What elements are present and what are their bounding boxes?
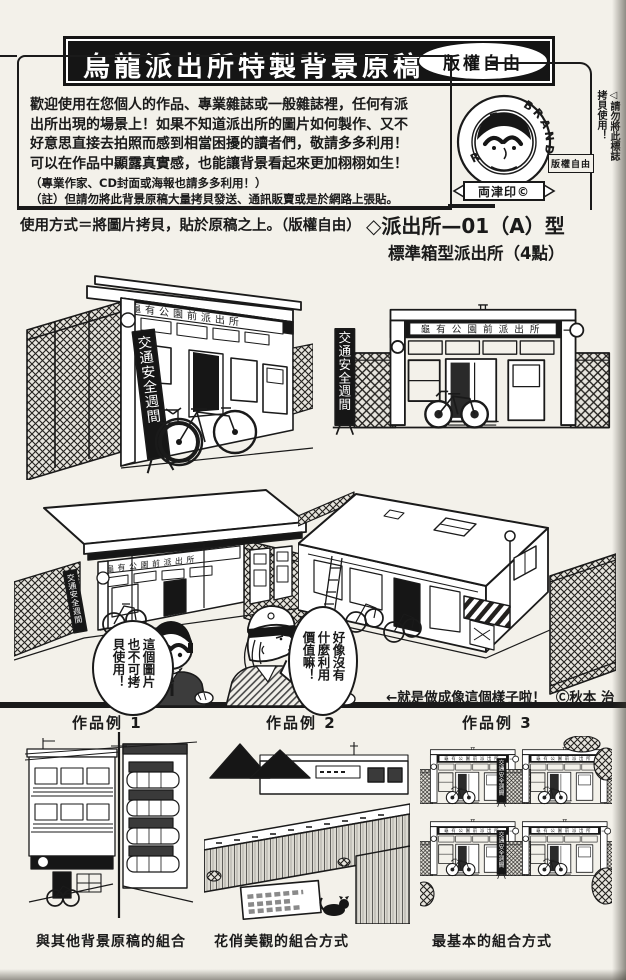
intro-line: 可以在作品中顯露真實感，也能讓背景看起來更加栩栩如生！: [30, 155, 442, 175]
model-title: ◇派出所—01（A）型: [366, 210, 565, 239]
speech-text: 這個圖片也不可拷貝使用！: [111, 638, 156, 698]
intro-note: （註）但請勿將此背景原稿大量拷貝發送、通訊販賣或是於網路上張貼。: [30, 192, 442, 206]
example-caption-1: 與其他背景原稿的組合: [36, 931, 186, 951]
speech-text: 好像沒有什麼利用價值嘛！: [301, 631, 346, 691]
model-subtitle: 標準箱型派出所（4點）: [388, 240, 564, 264]
example-panel-2-art: [204, 734, 410, 924]
intro-paragraph: 歡迎使用在您個人的作品、專業雜誌或一般雜誌裡，任何有派 出所出現的場景上！如果不…: [30, 96, 442, 206]
scan-edge-shadow-bottom: [0, 969, 626, 980]
poster-art: [241, 881, 321, 920]
intro-line: 出所出現的場景上！如果不知道派出所的圖片如何製作、又不: [30, 116, 442, 136]
cat-art: [320, 896, 349, 916]
stamp-ribbon-text: 両津印©: [478, 184, 530, 199]
example-caption-3: 最基本的組合方式: [432, 931, 552, 951]
stamp-permission-box: 版權自由: [548, 154, 594, 173]
usage-instruction: 使用方式＝將圖片拷貝，貼於原稿之上。（版權自由）: [20, 214, 361, 235]
example-caption-2: 花俏美觀的組合方式: [214, 931, 349, 951]
ryotsu-brand-stamp: RYOTSU BRAND 両津印©: [452, 88, 556, 206]
speech-bubble-nakagawa: 好像沒有什麼利用價值嘛！: [288, 606, 358, 716]
intro-note: （專業作家、CD封面或海報也請多多利用！）: [30, 176, 442, 190]
intro-line: 歡迎使用在您個人的作品、專業雜誌或一般雜誌裡，任何有派: [30, 96, 442, 116]
example-label-3: 作品例 3: [462, 712, 533, 733]
artwork-front-view: [328, 276, 614, 466]
artwork-perspective-view: 龜有公園前派出所 交通安全週間: [25, 252, 313, 480]
example-panel-1-art: [25, 732, 197, 918]
frame-edge-line: [0, 55, 17, 57]
example-panel-3-art: [420, 736, 612, 914]
manga-page: 龜有公園前派出所: [0, 0, 626, 980]
speech-bubble-ryotsu: 這個圖片也不可拷貝使用！: [92, 620, 174, 716]
scan-edge-shadow-right: [612, 0, 626, 980]
intro-line: 好意思直接去拍照而感到相當困擾的讀者們，敬請多多利用！: [30, 135, 442, 155]
